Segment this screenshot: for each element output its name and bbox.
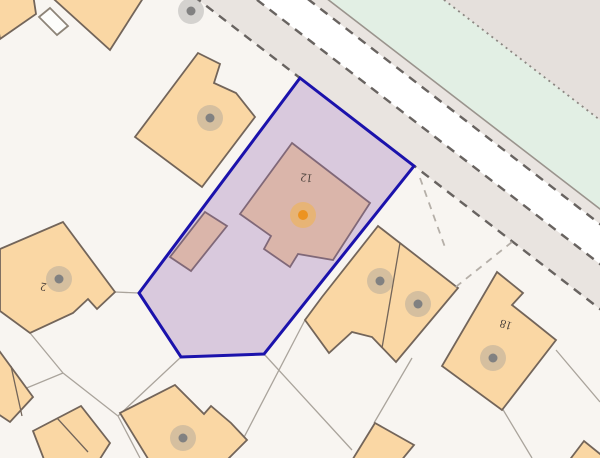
building-marker-dot[interactable] xyxy=(179,434,188,443)
house-number-label-12: 12 xyxy=(300,170,314,186)
building-marker-dot[interactable] xyxy=(187,7,196,16)
building-marker-dot[interactable] xyxy=(206,114,215,123)
building-marker-dot[interactable] xyxy=(489,354,498,363)
property-map[interactable]: 12218 xyxy=(0,0,600,458)
building-marker-dot[interactable] xyxy=(414,300,423,309)
selected-marker-dot[interactable] xyxy=(298,210,308,220)
map-canvas[interactable]: 12218 xyxy=(0,0,600,458)
building-marker-dot[interactable] xyxy=(55,275,64,284)
building-marker-dot[interactable] xyxy=(376,277,385,286)
